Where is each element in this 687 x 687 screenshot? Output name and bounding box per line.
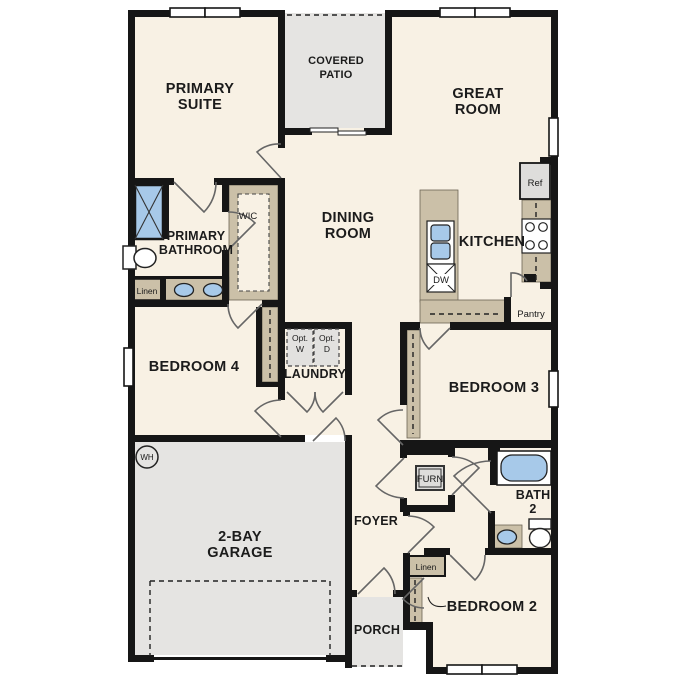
wall-segment (385, 10, 392, 135)
wall-segment (345, 590, 357, 597)
room-label-primary-suite-1: PRIMARY (166, 81, 234, 97)
wall-segment (400, 448, 407, 458)
wall-segment (448, 448, 455, 457)
room-label-porch: PORCH (354, 623, 400, 637)
label-ref: Ref (528, 178, 543, 189)
sink-icon-primary-2 (204, 284, 223, 297)
label-dw: DW (433, 275, 449, 286)
room-label-covered-patio-2: PATIO (320, 69, 353, 81)
wall-segment (278, 128, 312, 135)
sink-icon-primary-1 (175, 284, 194, 297)
wall-segment (540, 282, 558, 289)
room-label-kitchen: KITCHEN (459, 234, 526, 250)
wall-segment (400, 322, 407, 405)
wall-segment (345, 592, 352, 668)
label-opt-w-1: Opt. (292, 333, 308, 343)
room-label-foyer: FOYER (354, 514, 398, 528)
exterior-notch (403, 630, 426, 674)
label-linen-hall: Linen (416, 562, 437, 572)
toilet-icon-bath2 (529, 519, 551, 548)
window-icon (447, 665, 482, 674)
wall-segment (364, 128, 392, 135)
room-label-primary-bathroom-2: BATHROOM (159, 243, 233, 257)
window-icon (482, 665, 517, 674)
stove-icon (522, 219, 551, 253)
wall-segment (551, 10, 558, 674)
slider-door-panel-1 (310, 128, 338, 132)
room-label-dining-room-2: ROOM (325, 226, 371, 242)
room-label-bath2-2: 2 (529, 502, 536, 516)
wall-segment (214, 178, 285, 185)
shower-icon (135, 185, 163, 239)
wall-segment (450, 322, 507, 330)
label-furn: FURN (417, 474, 444, 485)
room-label-primary-bathroom-1: PRIMARY (167, 229, 226, 243)
slider-door-panel-2 (338, 131, 366, 135)
label-pantry: Pantry (517, 309, 545, 320)
wall-segment (285, 322, 345, 329)
kitchen-island-horizontal (420, 300, 505, 323)
wall-segment (152, 657, 328, 660)
label-linen-primary: Linen (137, 286, 158, 296)
wall-segment (278, 178, 285, 307)
window-icon (440, 8, 475, 17)
window-icon (170, 8, 205, 17)
room-label-dining-room-1: DINING (322, 210, 375, 226)
room-label-great-room-2: ROOM (455, 102, 501, 118)
wall-segment (160, 277, 166, 300)
label-wic: WIC (239, 211, 258, 222)
window-icon (124, 348, 133, 386)
wall-segment (222, 185, 229, 212)
label-wh: WH (140, 453, 154, 462)
sink-icon-bath2 (498, 530, 517, 544)
window-icon (549, 118, 558, 156)
label-opt-d-1: Opt. (319, 333, 335, 343)
floor-plan-svg: PRIMARY SUITE COVERED PATIO GREAT ROOM D… (0, 0, 687, 687)
wall-segment (128, 300, 228, 307)
room-label-great-room-1: GREAT (452, 86, 503, 102)
room-label-laundry: LAUNDRY (284, 367, 347, 381)
label-opt-d-2: D (324, 344, 330, 354)
room-label-garage-2: GARAGE (207, 545, 272, 561)
wall-segment (403, 553, 410, 630)
wall-segment (278, 10, 285, 148)
toilet-icon-primary (123, 246, 156, 269)
window-icon (549, 371, 558, 407)
wall-segment (345, 435, 352, 592)
wic-shelf-line (238, 194, 269, 291)
room-label-garage-1: 2-BAY (218, 529, 262, 545)
wall-segment (256, 307, 262, 387)
window-icon (475, 8, 510, 17)
wall-segment (128, 435, 135, 662)
wall-segment (262, 300, 285, 307)
room-label-bedroom3: BEDROOM 3 (449, 380, 540, 396)
room-label-bedroom4: BEDROOM 4 (149, 359, 240, 375)
wall-segment (405, 622, 433, 630)
wall-segment (426, 630, 433, 674)
bathtub-icon (497, 451, 551, 485)
label-opt-w-2: W (296, 344, 304, 354)
wall-segment (133, 276, 229, 279)
wall-segment (424, 548, 450, 555)
wall-segment (488, 511, 495, 555)
bedroom4-closet (262, 307, 278, 382)
room-label-bedroom2: BEDROOM 2 (447, 599, 538, 615)
room-label-primary-suite-2: SUITE (178, 97, 222, 113)
wall-segment (400, 440, 558, 448)
room-label-bath2-1: BATH (516, 488, 551, 502)
floor-plan: PRIMARY SUITE COVERED PATIO GREAT ROOM D… (0, 0, 687, 687)
wall-segment (400, 505, 455, 512)
wall-segment (504, 322, 558, 330)
wall-segment (485, 548, 558, 555)
wall-segment (400, 498, 407, 512)
kitchen-sink-icon (427, 221, 454, 264)
wall-segment (256, 382, 285, 387)
wall-segment (128, 435, 305, 442)
window-icon (205, 8, 240, 17)
wall-segment (345, 322, 352, 395)
wall-segment (448, 495, 455, 512)
room-label-covered-patio-1: COVERED (308, 55, 364, 67)
wall-segment (400, 448, 455, 455)
wall-segment (128, 655, 154, 662)
